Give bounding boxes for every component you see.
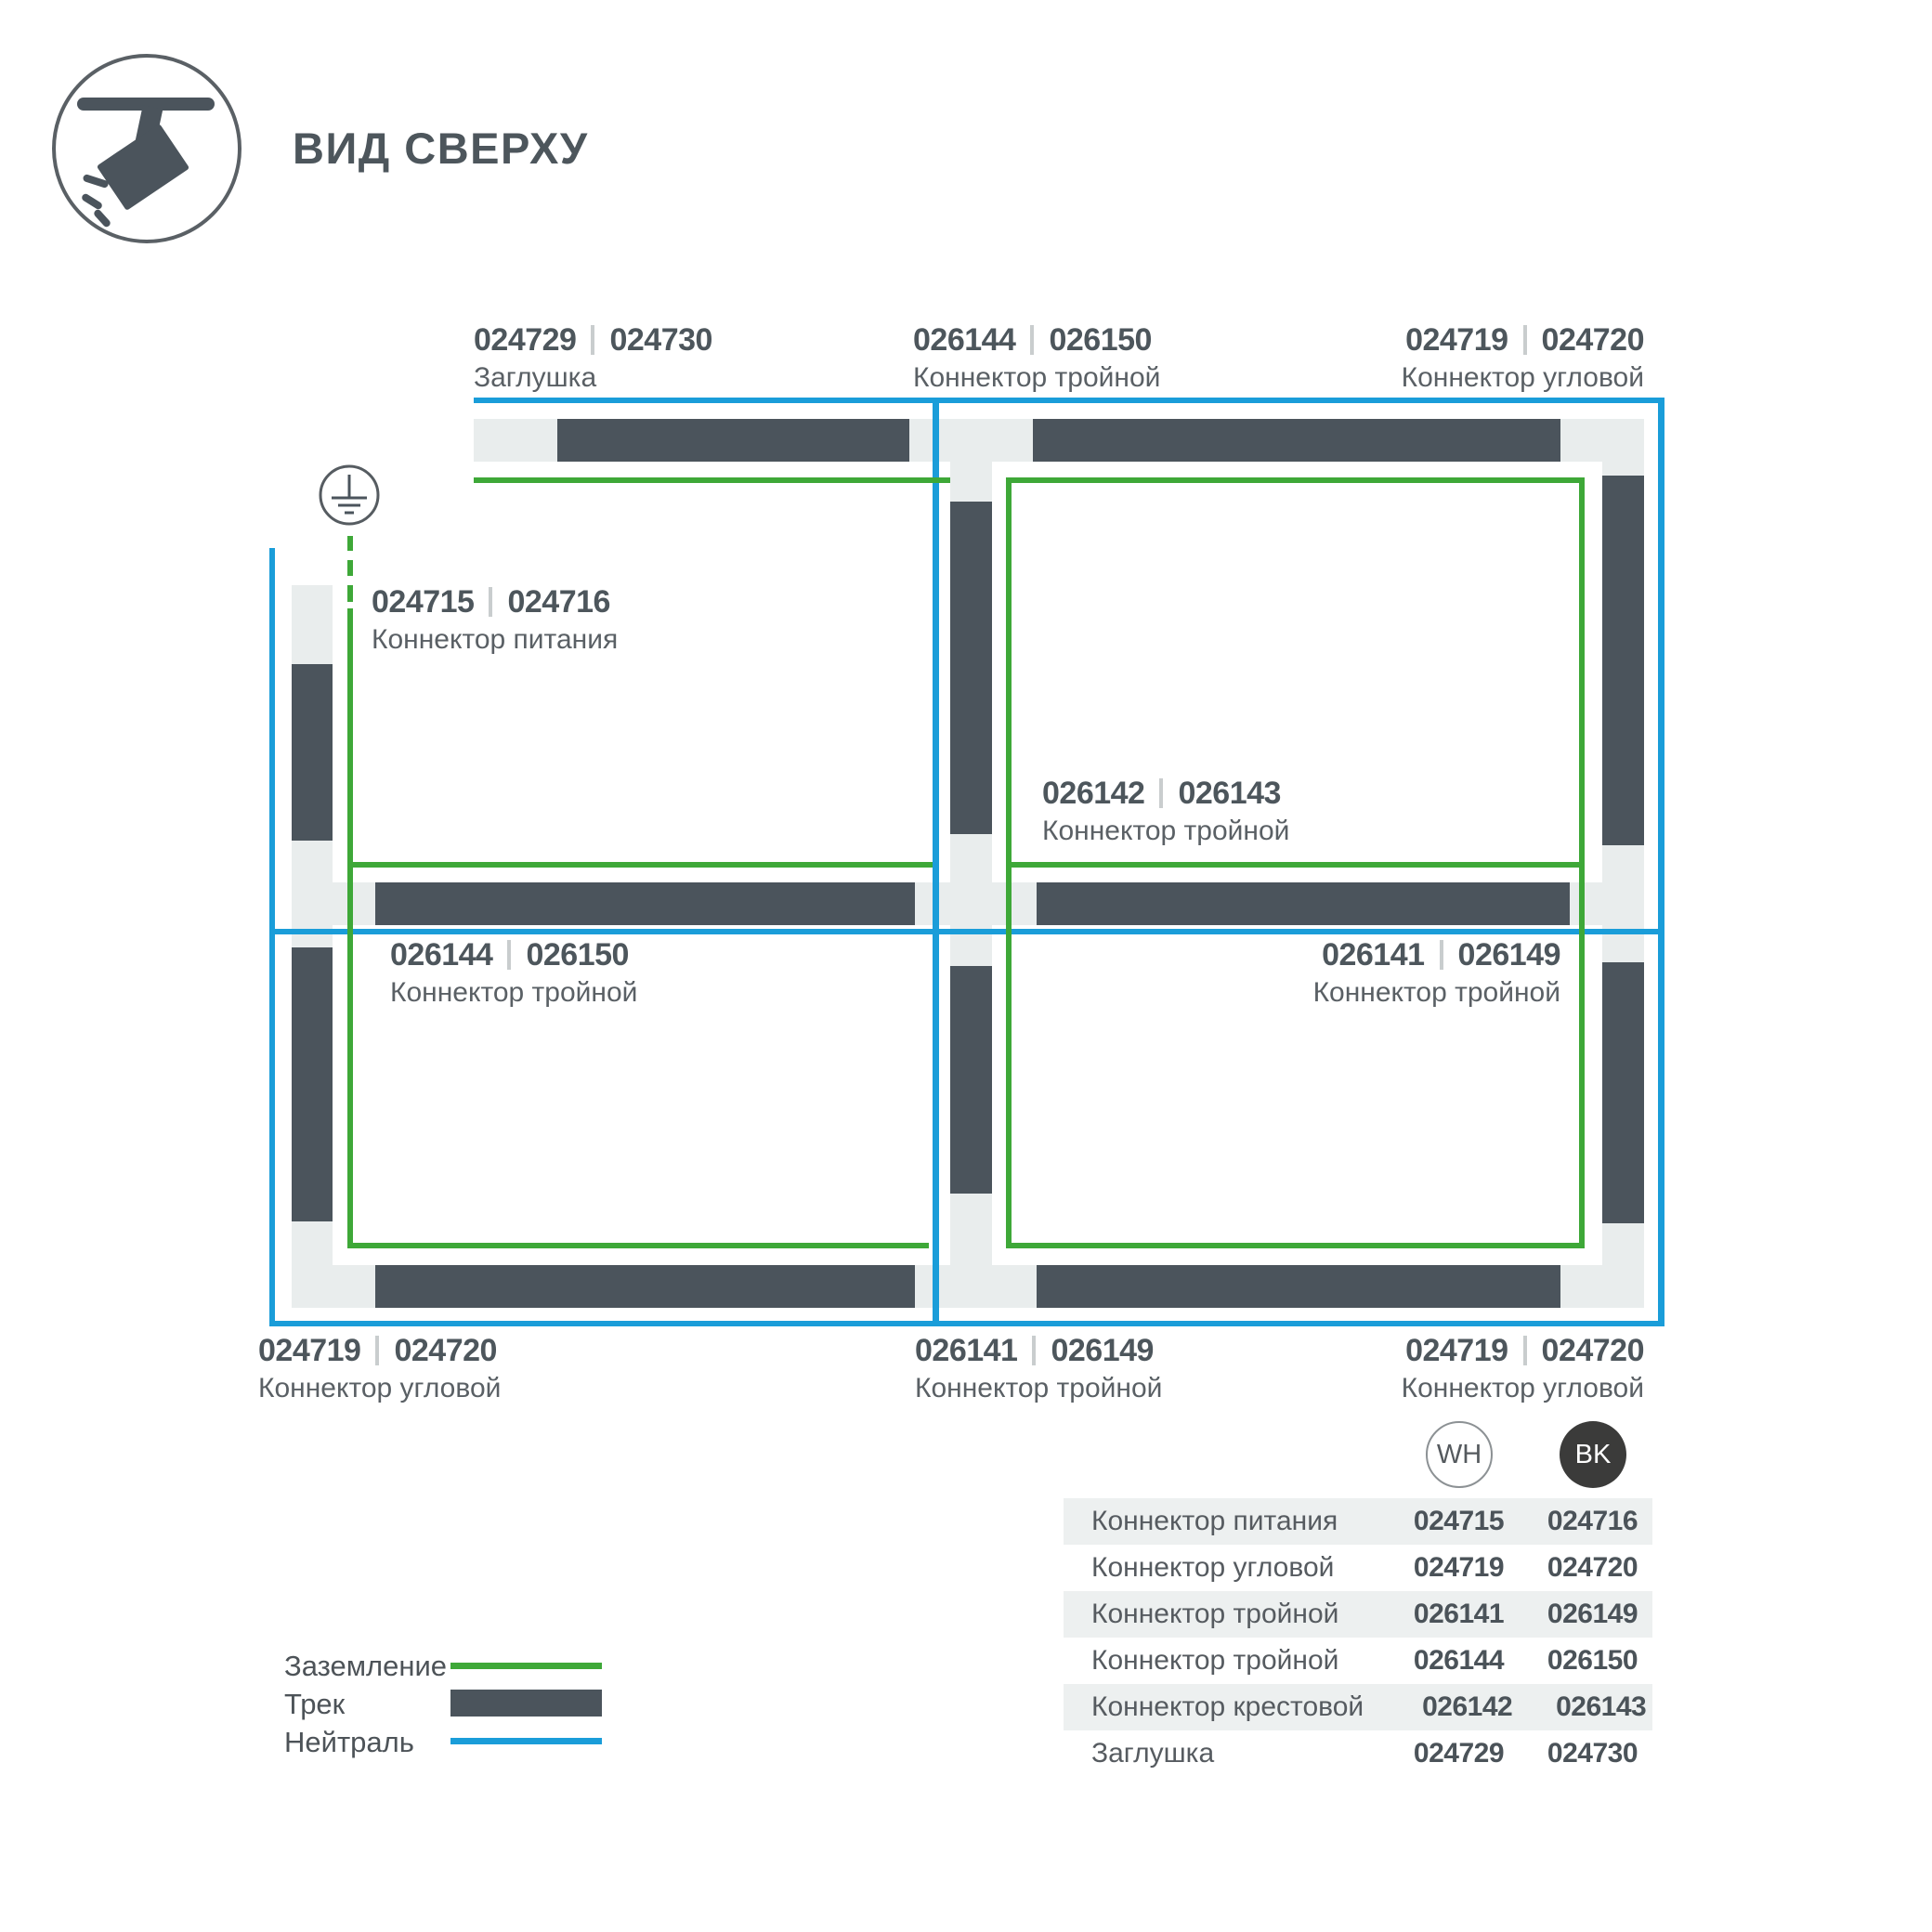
part-name: Коннектор тройной xyxy=(915,1373,1162,1404)
callout-tee-top: 026144026150 Коннектор тройной xyxy=(913,323,1160,394)
part-code-wh-cell: 026141 xyxy=(1355,1599,1504,1630)
table-row: Коннектор питания 024715 024716 xyxy=(1064,1498,1652,1545)
connector-endcap-top-left xyxy=(474,419,557,462)
part-code-bk-cell: 024716 xyxy=(1504,1506,1652,1537)
callout-tee-left: 026144026150 Коннектор тройной xyxy=(390,938,637,1009)
neutral-line-left xyxy=(269,548,275,1326)
ground-line-left-vertical xyxy=(347,608,353,1248)
code-separator xyxy=(489,587,492,617)
part-name: Коннектор тройной xyxy=(1313,977,1560,1009)
legend-label-neutral: Нейтраль xyxy=(284,1726,414,1759)
color-badge-white: WH xyxy=(1426,1421,1493,1488)
part-codes: 024719024720 xyxy=(1402,1334,1644,1367)
connector-tee-left-arm xyxy=(333,882,375,925)
callout-corner-bottom-left: 024719024720 Коннектор угловой xyxy=(258,1334,501,1404)
code-separator xyxy=(507,940,511,970)
part-codes: 026141026149 xyxy=(915,1334,1162,1367)
code-separator xyxy=(1440,940,1443,970)
part-name-cell: Коннектор угловой xyxy=(1064,1552,1355,1584)
callout-power-connector: 024715024716 Коннектор питания xyxy=(372,585,618,656)
callout-cross-connector: 026142026143 Коннектор тройной xyxy=(1042,777,1289,847)
track-spotlight-icon xyxy=(49,51,244,246)
neutral-line-right xyxy=(1658,398,1664,1326)
part-name-cell: Коннектор тройной xyxy=(1064,1645,1355,1677)
code-separator xyxy=(1523,325,1527,355)
track-segment-top-left xyxy=(557,419,909,462)
parts-table: Коннектор питания 024715 024716 Коннекто… xyxy=(1064,1498,1652,1777)
part-code-wh-cell: 026142 xyxy=(1364,1691,1512,1723)
connector-corner-bottom-right xyxy=(1560,1265,1644,1308)
ground-line-swatch xyxy=(450,1663,602,1669)
connector-corner-bottom-left xyxy=(292,1221,333,1308)
callout-corner-top-right: 024719024720 Коннектор угловой xyxy=(1402,323,1644,394)
ground-line-dash-3 xyxy=(347,585,353,602)
part-codes: 026144026150 xyxy=(390,938,637,972)
connector-corner-bottom-right-arm xyxy=(1602,1223,1644,1265)
part-name-cell: Коннектор тройной xyxy=(1064,1599,1355,1630)
part-code-wh-cell: 024715 xyxy=(1355,1506,1504,1537)
color-badge-black: BK xyxy=(1560,1421,1626,1488)
part-codes: 026141026149 xyxy=(1313,938,1560,972)
code-separator xyxy=(591,325,594,355)
table-row: Коннектор тройной 026144 026150 xyxy=(1064,1638,1652,1684)
track-segment-bottom-left xyxy=(375,1265,915,1308)
ground-line-bottom-right xyxy=(1006,1243,1585,1248)
code-separator xyxy=(1032,1336,1036,1365)
track-segment-right-upper xyxy=(1602,476,1644,845)
ground-line-top-left xyxy=(474,477,950,483)
ground-symbol-icon xyxy=(317,463,382,528)
legend-label-ground: Заземление xyxy=(284,1650,447,1683)
table-row: Коннектор тройной 026141 026149 xyxy=(1064,1591,1652,1638)
part-code-bk-cell: 026150 xyxy=(1504,1645,1652,1677)
catalog-page: ВИД СВЕРХУ xyxy=(0,0,1932,1932)
part-code-bk-cell: 026149 xyxy=(1504,1599,1652,1630)
part-code-wh-cell: 024719 xyxy=(1355,1552,1504,1584)
connector-tee-top-stem xyxy=(950,462,992,502)
connector-corner-bottom-left-arm xyxy=(333,1265,375,1308)
connector-tee-right xyxy=(1602,845,1644,962)
connector-tee-bottom-stem xyxy=(950,1194,992,1265)
part-codes: 024719024720 xyxy=(1402,323,1644,357)
track-segment-left-lower xyxy=(292,947,333,1221)
ground-line-dash-2 xyxy=(347,560,353,576)
ground-line-middle-right xyxy=(1006,862,1585,868)
code-separator xyxy=(1159,778,1163,808)
part-code-bk-cell: 026143 xyxy=(1512,1691,1661,1723)
part-codes: 026144026150 xyxy=(913,323,1160,357)
ground-line-bottom-left xyxy=(347,1243,929,1248)
part-code-wh-cell: 024729 xyxy=(1355,1738,1504,1769)
ground-line-right-vertical xyxy=(1579,477,1585,1248)
part-codes: 026142026143 xyxy=(1042,777,1289,810)
connector-tee-right-arm xyxy=(1570,882,1602,925)
track-segment-center-lower xyxy=(950,966,992,1194)
callout-corner-bottom-right: 024719024720 Коннектор угловой xyxy=(1402,1334,1644,1404)
track-segment-middle-right xyxy=(1037,882,1570,925)
part-name: Коннектор угловой xyxy=(1402,1373,1644,1404)
ground-line-top-right xyxy=(1006,477,1585,483)
track-swatch xyxy=(450,1690,602,1717)
neutral-line-middle xyxy=(269,929,1658,934)
part-name-cell: Заглушка xyxy=(1064,1738,1355,1769)
neutral-line-top xyxy=(474,398,1664,403)
part-name: Коннектор угловой xyxy=(1402,362,1644,394)
neutral-line-swatch xyxy=(450,1738,602,1744)
part-name-cell: Коннектор питания xyxy=(1064,1506,1355,1537)
part-code-wh-cell: 026144 xyxy=(1355,1645,1504,1677)
part-code-bk-cell: 024720 xyxy=(1504,1552,1652,1584)
connector-tee-top xyxy=(909,419,1033,462)
part-name: Коннектор тройной xyxy=(913,362,1160,394)
part-codes: 024715024716 xyxy=(372,585,618,619)
callout-tee-bottom: 026141026149 Коннектор тройной xyxy=(915,1334,1162,1404)
code-separator xyxy=(375,1336,379,1365)
callout-tee-right: 026141026149 Коннектор тройной xyxy=(1313,938,1560,1009)
table-row: Коннектор угловой 024719 024720 xyxy=(1064,1545,1652,1591)
callout-endcap: 024729024730 Заглушка xyxy=(474,323,712,394)
track-segment-top-right xyxy=(1033,419,1560,462)
part-name-cell: Коннектор крестовой xyxy=(1064,1691,1364,1723)
neutral-line-center xyxy=(933,398,939,1326)
table-row: Заглушка 024729 024730 xyxy=(1064,1730,1652,1777)
ground-line-center-vertical xyxy=(1006,477,1012,1248)
legend-label-track: Трек xyxy=(284,1688,345,1721)
part-name: Коннектор тройной xyxy=(390,977,637,1009)
part-codes: 024719024720 xyxy=(258,1334,501,1367)
part-codes: 024729024730 xyxy=(474,323,712,357)
track-segment-middle-left xyxy=(375,882,915,925)
part-name: Коннектор питания xyxy=(372,624,618,656)
part-code-bk-cell: 024730 xyxy=(1504,1738,1652,1769)
connector-corner-top-right-arm xyxy=(1602,419,1644,476)
code-separator xyxy=(1523,1336,1527,1365)
table-row: Коннектор крестовой 026142 026143 xyxy=(1064,1684,1652,1730)
part-name: Коннектор тройной xyxy=(1042,816,1289,847)
connector-power-endcap xyxy=(292,585,333,664)
part-name: Заглушка xyxy=(474,362,712,394)
track-segment-left-upper xyxy=(292,664,333,841)
track-segment-bottom-right xyxy=(1037,1265,1560,1308)
neutral-line-bottom xyxy=(269,1321,1664,1326)
ground-line-dash-1 xyxy=(347,536,353,551)
page-title: ВИД СВЕРХУ xyxy=(293,123,589,174)
part-name: Коннектор угловой xyxy=(258,1373,501,1404)
ground-line-middle-left xyxy=(347,862,933,868)
track-segment-right-lower xyxy=(1602,962,1644,1223)
track-segment-center-upper xyxy=(950,502,992,834)
code-separator xyxy=(1030,325,1034,355)
